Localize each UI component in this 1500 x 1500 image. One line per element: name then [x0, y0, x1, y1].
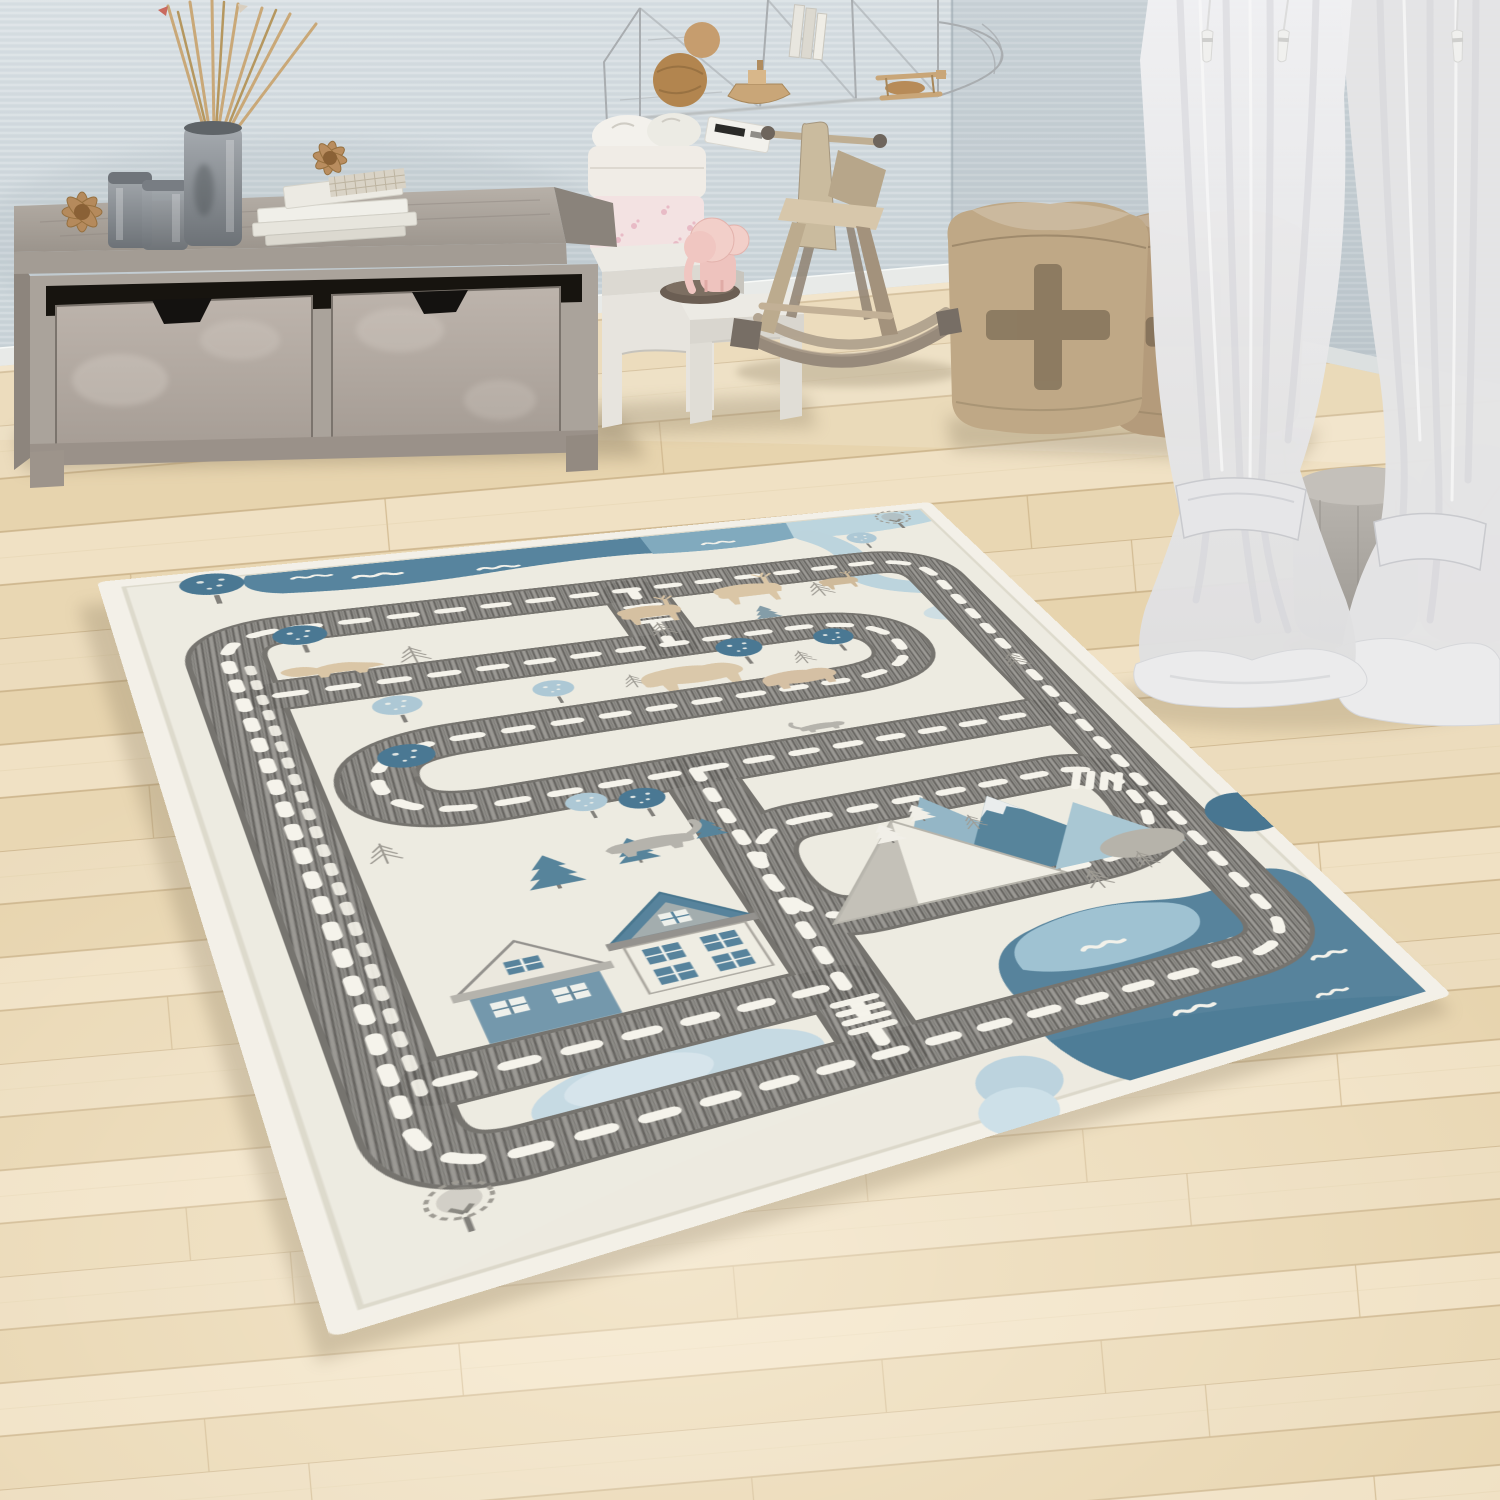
toy-boat: [728, 60, 790, 104]
step-stool: [588, 113, 804, 428]
jute-pouf-front: [948, 202, 1149, 435]
book-stack: [251, 140, 417, 246]
basket-cuff: [588, 146, 706, 198]
mini-flag: [238, 4, 248, 13]
pinecone-on-books: [312, 140, 348, 176]
curtain-panel-left: [1134, 0, 1367, 708]
room-foreground: [0, 0, 1500, 1500]
bench-drawer: [332, 287, 560, 450]
shelf-books: [789, 5, 827, 60]
wooden-ball-large: [653, 53, 707, 107]
glass-jars: [108, 172, 188, 250]
mini-flag: [158, 6, 168, 16]
toy-biplane: [878, 70, 946, 98]
pinecone-ornament: [62, 192, 102, 232]
playroom-scene: [0, 0, 1500, 1500]
wooden-ball-small: [684, 22, 720, 58]
rocking-horse: [730, 122, 962, 361]
storage-bench: [14, 0, 617, 488]
curtains: [1134, 0, 1500, 726]
curtain-panel-right: [1330, 0, 1500, 726]
